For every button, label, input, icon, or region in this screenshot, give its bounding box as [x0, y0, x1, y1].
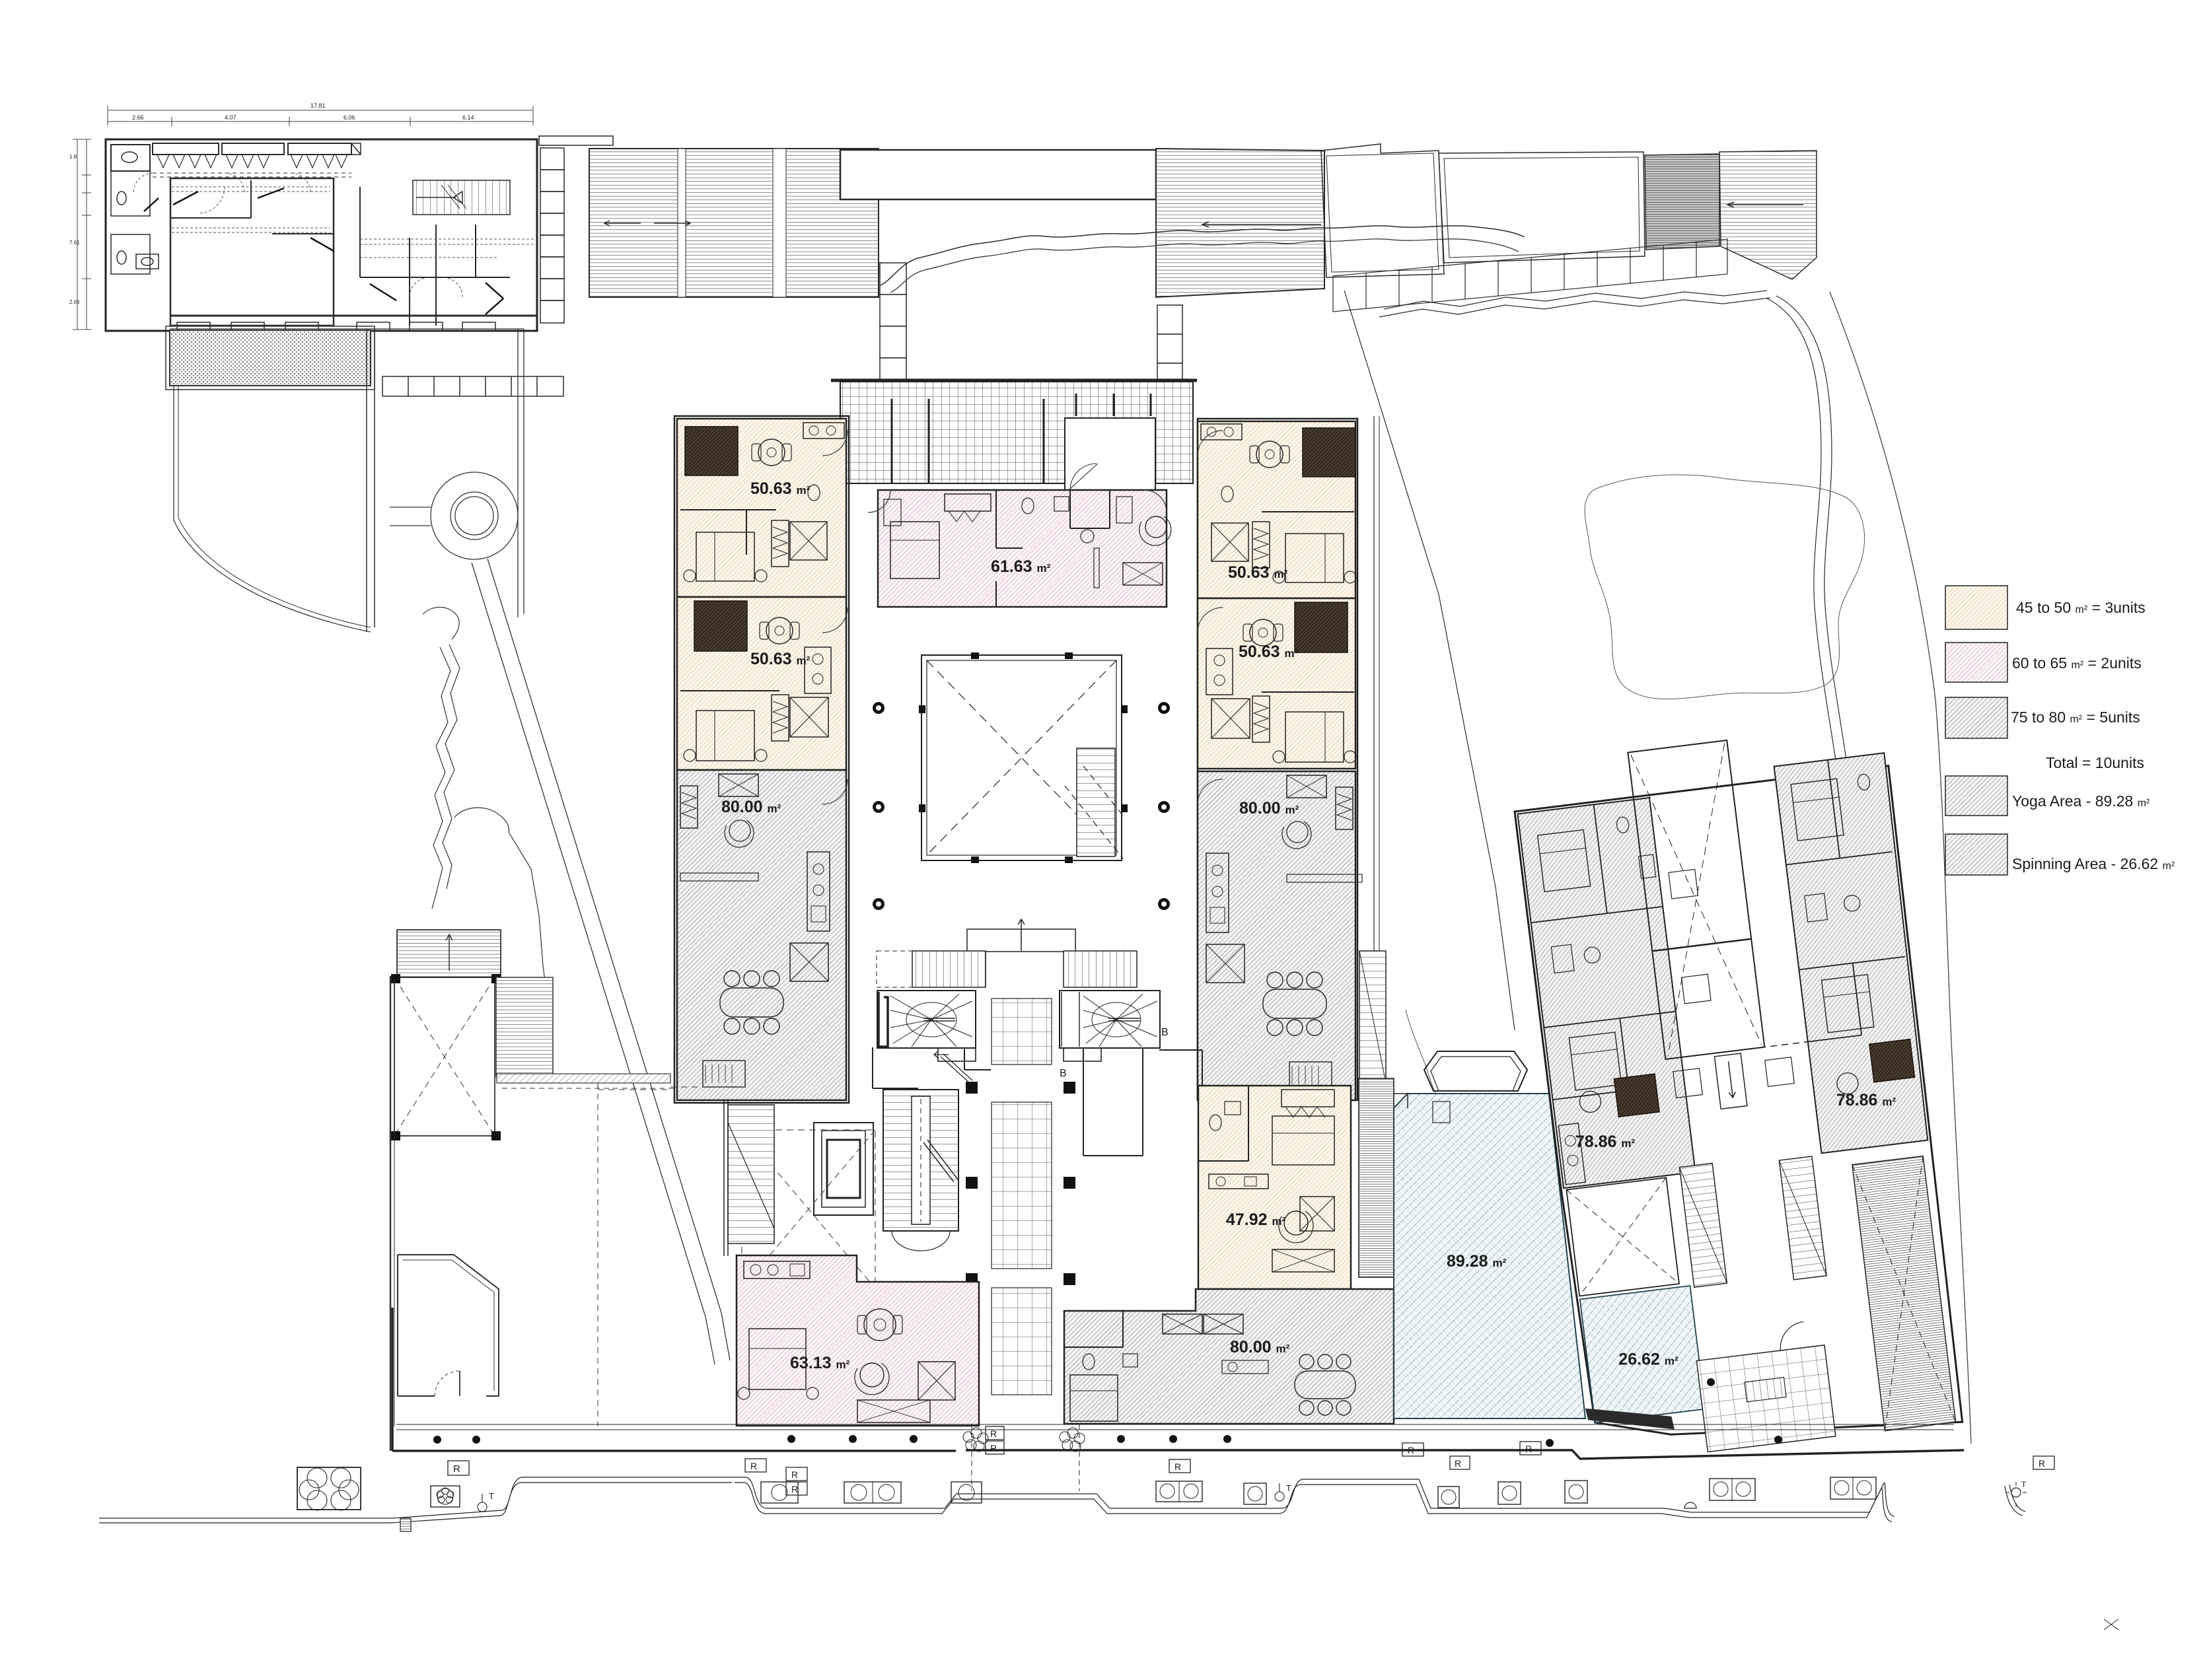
- svg-text:R: R: [791, 1469, 798, 1480]
- svg-text:R: R: [2039, 1458, 2045, 1469]
- svg-text:R: R: [990, 1428, 997, 1439]
- svg-text:Total = 10units: Total = 10units: [2046, 754, 2144, 771]
- svg-text:R: R: [990, 1443, 997, 1453]
- svg-text:4.07: 4.07: [225, 114, 236, 121]
- svg-text:Spinning Area - 26.62 m²: Spinning Area - 26.62 m²: [2012, 855, 2175, 872]
- svg-text:6.06: 6.06: [343, 114, 355, 121]
- svg-text:R: R: [453, 1463, 460, 1475]
- svg-text:1.8: 1.8: [69, 154, 77, 160]
- svg-text:T: T: [1286, 1483, 1291, 1493]
- svg-text:Yoga Area - 89.28 m²: Yoga Area - 89.28 m²: [2012, 792, 2150, 810]
- svg-text:17.81: 17.81: [310, 102, 326, 109]
- svg-text:R: R: [1408, 1445, 1414, 1455]
- svg-text:T: T: [489, 1491, 494, 1501]
- svg-text:7.61: 7.61: [69, 240, 80, 246]
- svg-text:R: R: [750, 1461, 757, 1471]
- svg-text:R: R: [1174, 1461, 1181, 1472]
- svg-text:R: R: [791, 1484, 798, 1494]
- svg-text:R: R: [1455, 1458, 1461, 1469]
- svg-text:2.66: 2.66: [132, 114, 144, 121]
- svg-text:2.66: 2.66: [69, 299, 80, 305]
- svg-text:T: T: [2021, 1480, 2027, 1489]
- svg-text:6.14: 6.14: [462, 114, 474, 121]
- svg-text:B: B: [1161, 1027, 1169, 1038]
- svg-text:R: R: [1525, 1444, 1532, 1454]
- svg-text:B: B: [1060, 1068, 1067, 1079]
